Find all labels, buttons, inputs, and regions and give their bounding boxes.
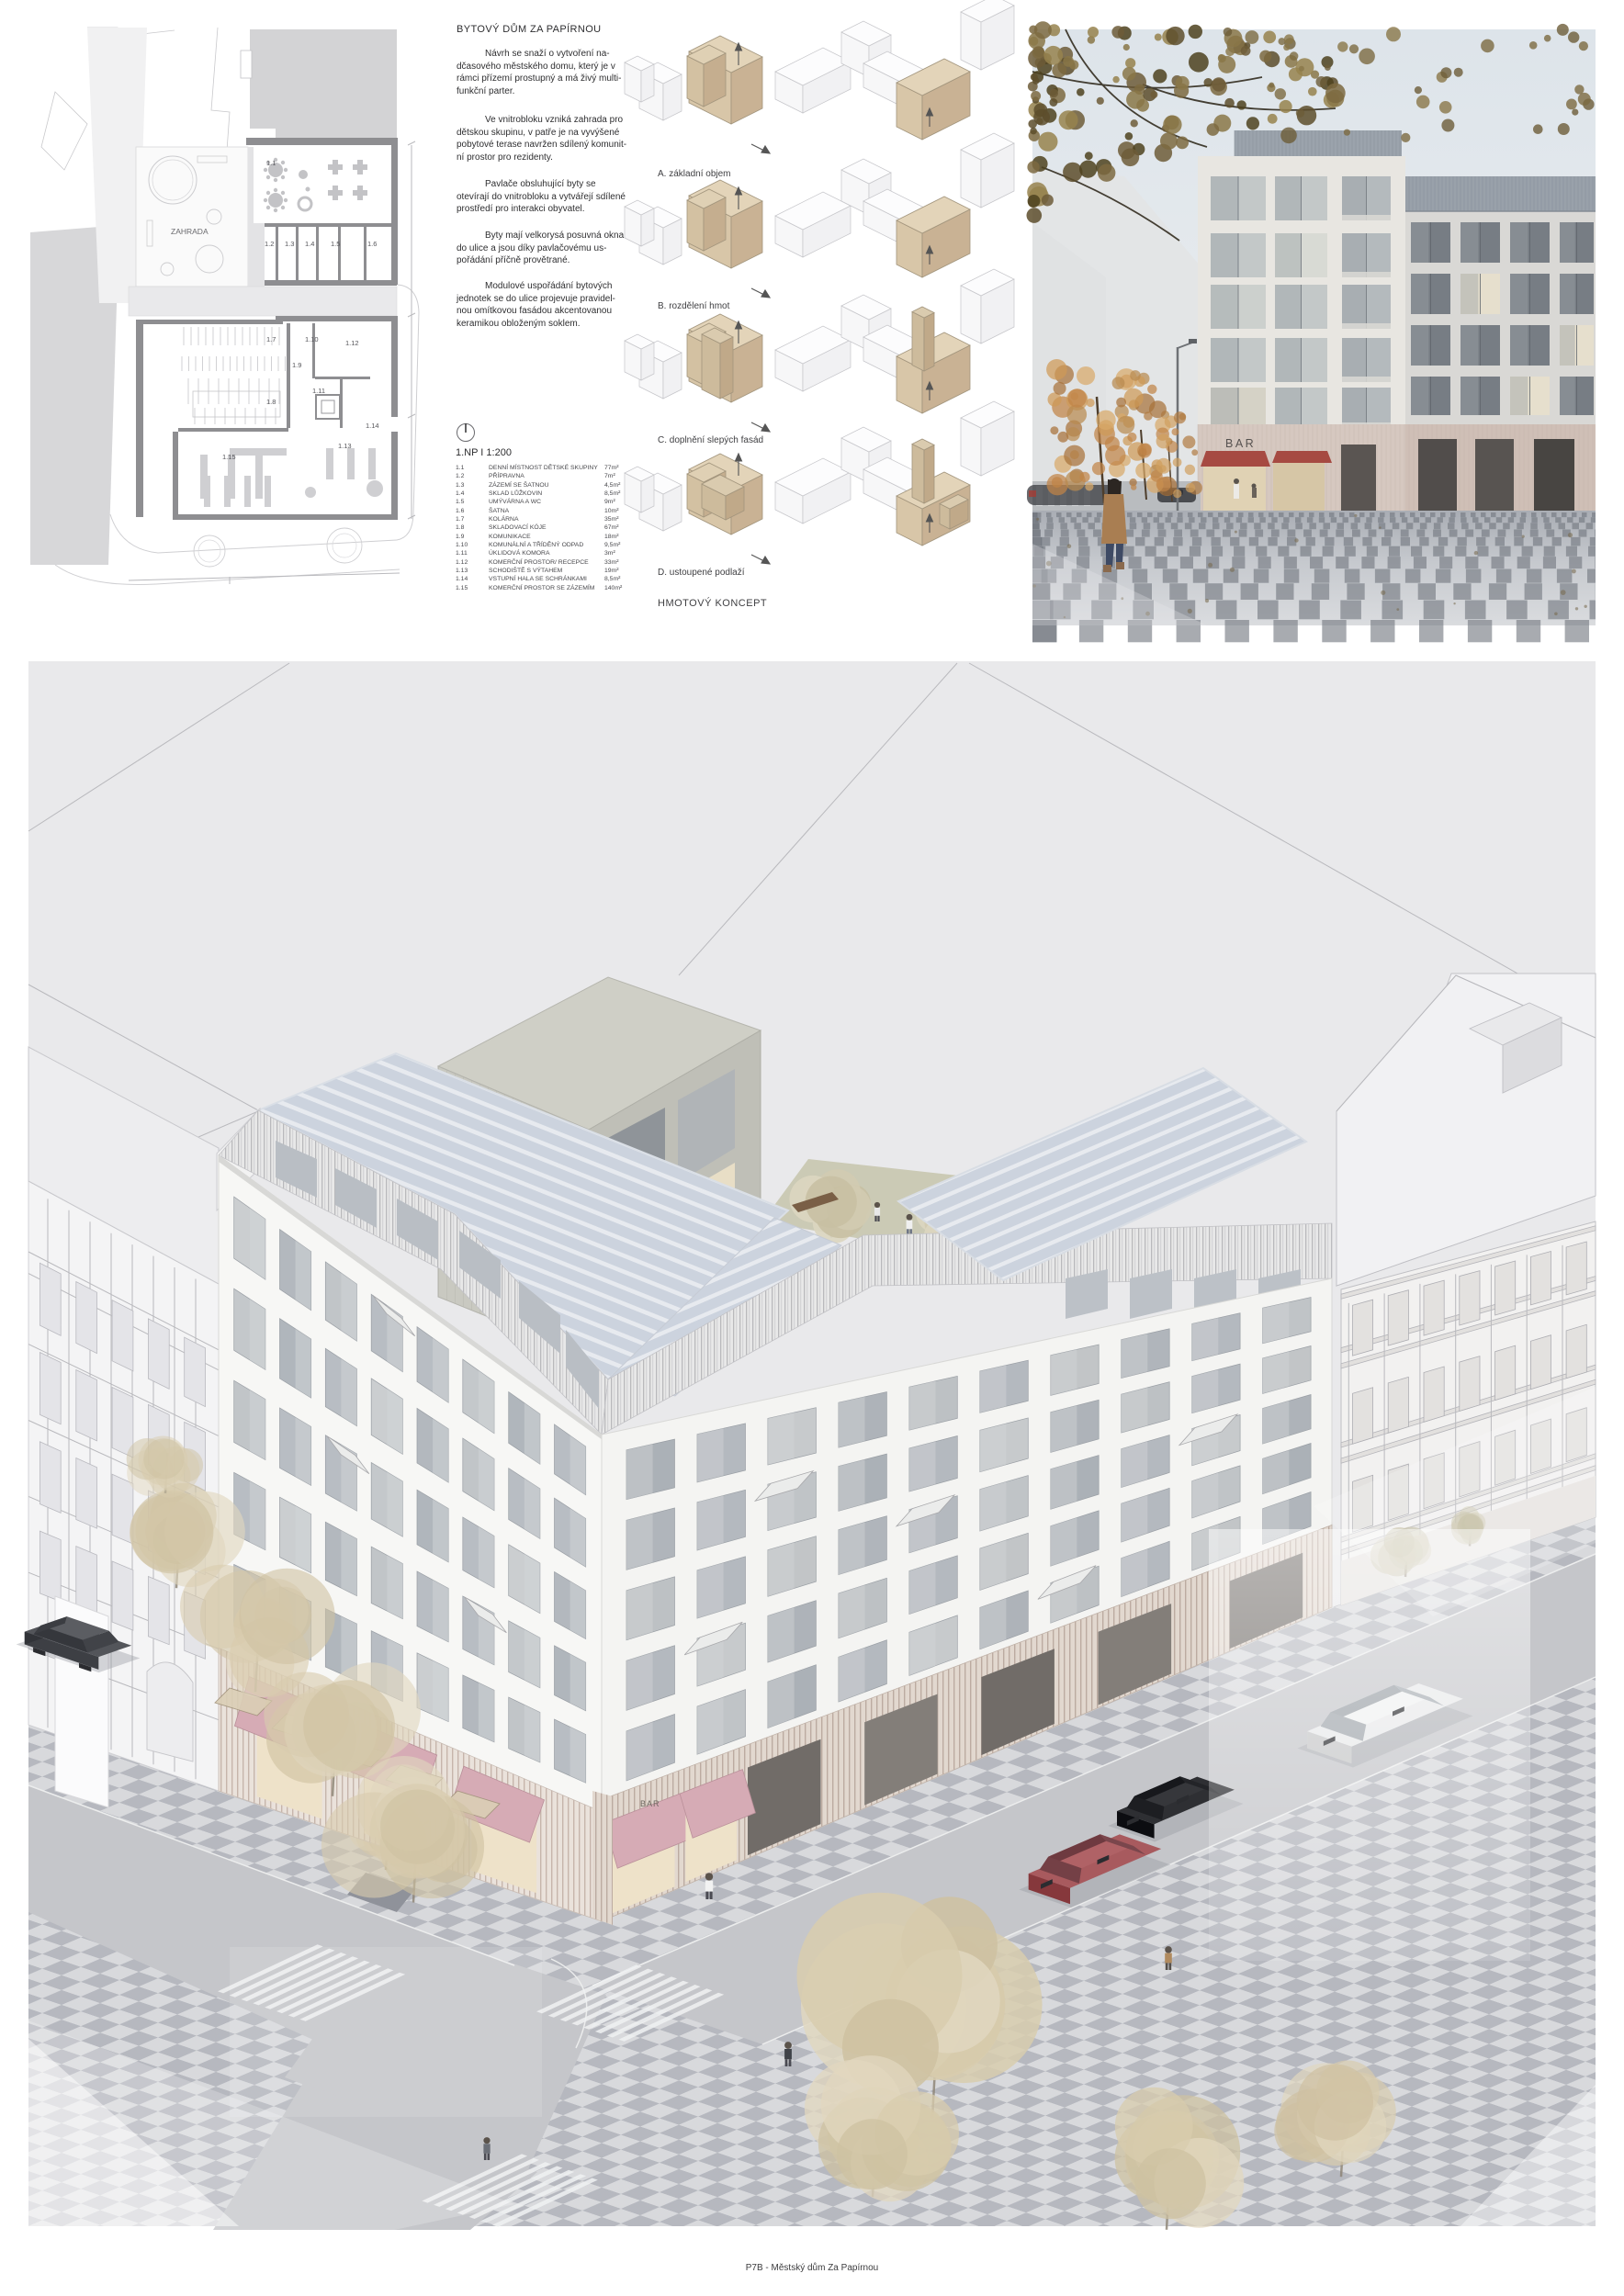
svg-text:BAR: BAR — [640, 1799, 660, 1808]
